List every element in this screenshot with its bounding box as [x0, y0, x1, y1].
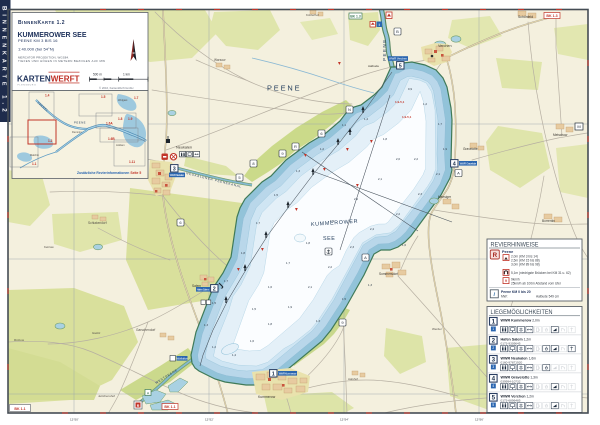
svg-text:039994-10732: 039994-10732 — [501, 380, 521, 384]
svg-text:2,1: 2,1 — [308, 285, 313, 289]
svg-text:Peene: Peene — [502, 250, 513, 254]
svg-text:Werder: Werder — [432, 327, 442, 331]
svg-text:Demmin: Demmin — [72, 130, 82, 134]
svg-text:Zusätzliche Revierinformatione: Zusätzliche Revierinformationen Seite 5 — [77, 171, 141, 175]
svg-text:0173-9309645: 0173-9309645 — [501, 342, 521, 346]
svg-text:1,2: 1,2 — [320, 147, 325, 151]
svg-text:1: 1 — [492, 319, 496, 326]
svg-text:1,2: 1,2 — [212, 345, 217, 349]
svg-text:1,9: 1,9 — [288, 305, 293, 309]
svg-text:1,6: 1,6 — [250, 339, 255, 343]
svg-text:0,9: 0,9 — [408, 87, 413, 91]
svg-text:500 m: 500 m — [93, 73, 102, 77]
svg-text:Gielitz: Gielitz — [92, 331, 101, 335]
svg-text:PEENE: PEENE — [267, 84, 301, 93]
svg-text:BK 1.1: BK 1.1 — [14, 407, 25, 411]
svg-text:2: 2 — [213, 286, 216, 292]
svg-text:5: 5 — [492, 395, 496, 402]
svg-text:N: N — [348, 107, 351, 112]
svg-text:WWR Kummerow 2,0m: WWR Kummerow 2,0m — [501, 319, 540, 323]
svg-text:2: 2 — [492, 346, 494, 350]
svg-text:Schönfeld: Schönfeld — [518, 15, 533, 19]
svg-text:2,1: 2,1 — [436, 172, 441, 176]
svg-text:1: 1 — [272, 371, 275, 377]
svg-text:SEE: SEE — [323, 236, 336, 242]
svg-text:1,5: 1,5 — [252, 307, 257, 311]
svg-text:2,0: 2,0 — [396, 157, 401, 161]
svg-text:MW:: MW: — [501, 295, 508, 299]
svg-text:1,8: 1,8 — [306, 241, 311, 245]
svg-text:1,6: 1,6 — [402, 243, 407, 247]
svg-text:0160-97871920: 0160-97871920 — [501, 361, 523, 365]
svg-text:KARTENWERFT: KARTENWERFT — [17, 74, 80, 84]
svg-text:REVIERHINWEISE: REVIERHINWEISE — [491, 242, 539, 248]
svg-text:1 km: 1 km — [123, 73, 130, 77]
svg-text:1,3: 1,3 — [316, 319, 321, 323]
svg-text:R: R — [294, 144, 297, 149]
svg-text:Warsow: Warsow — [214, 58, 226, 62]
svg-text:Verchen: Verchen — [438, 44, 452, 48]
svg-text:2,0: 2,0 — [354, 197, 359, 201]
svg-text:1.6A: 1.6A — [106, 122, 113, 126]
svg-text:1.2: 1.2 — [48, 139, 53, 143]
svg-text:Schlakendorf: Schlakendorf — [88, 221, 107, 225]
svg-text:3: 3 — [173, 166, 176, 172]
svg-text:5: 5 — [492, 403, 494, 407]
svg-text:N: N — [133, 51, 135, 55]
svg-text:Gravelotte: Gravelotte — [463, 147, 478, 151]
svg-text:1,7: 1,7 — [224, 279, 229, 283]
svg-text:LIEGEMÖGLICHKEITEN: LIEGEMÖGLICHKEITEN — [491, 309, 553, 316]
svg-text:0173-6896485: 0173-6896485 — [501, 399, 521, 403]
svg-text:3,0m (KM 89 bis 98): 3,0m (KM 89 bis 98) — [511, 262, 540, 266]
svg-text:12°50': 12°50' — [70, 418, 79, 422]
svg-text:4: 4 — [453, 161, 456, 167]
svg-text:1.11: 1.11 — [129, 160, 135, 164]
svg-text:Sommersdorf: Sommersdorf — [379, 272, 398, 276]
svg-text:Meesiger: Meesiger — [438, 195, 452, 199]
svg-text:Anklam: Anklam — [116, 143, 125, 147]
svg-text:3: 3 — [492, 357, 496, 364]
svg-text:WWR Kummerow: WWR Kummerow — [279, 372, 297, 376]
svg-text:1,5: 1,5 — [274, 193, 279, 197]
svg-text:© 2016, KartenWerft GmbH: © 2016, KartenWerft GmbH — [99, 86, 133, 90]
svg-text:Aalbude: Aalbude — [368, 64, 379, 68]
svg-text:3: 3 — [492, 365, 494, 369]
svg-text:1,9-5,1: 1,9-5,1 — [395, 100, 405, 104]
svg-text:1.8: 1.8 — [118, 117, 123, 121]
svg-text:2,2: 2,2 — [414, 157, 419, 161]
svg-text:2,2: 2,2 — [396, 212, 401, 216]
svg-text:2,1: 2,1 — [378, 177, 383, 181]
svg-text:A: A — [364, 255, 367, 260]
svg-text:Neukalen: Neukalen — [176, 146, 192, 150]
svg-text:1,5: 1,5 — [342, 297, 347, 301]
svg-text:5: 5 — [399, 63, 402, 69]
svg-text:4: 4 — [492, 384, 494, 388]
svg-text:WWR Gravelotte: WWR Gravelotte — [460, 162, 477, 166]
svg-text:12°52': 12°52' — [205, 418, 214, 422]
svg-text:1.6B: 1.6B — [108, 137, 115, 141]
svg-text:Garschendorf: Garschendorf — [136, 328, 155, 332]
svg-text:1,7: 1,7 — [256, 221, 261, 225]
svg-text:FLENSBURG: FLENSBURG — [18, 85, 37, 87]
svg-text:2: 2 — [492, 338, 496, 345]
svg-text:B: B — [396, 29, 399, 34]
svg-text:BINNENKARTE 1.2: BINNENKARTE 1.2 — [1, 6, 8, 112]
svg-text:9: 9 — [505, 279, 507, 283]
svg-text:1,4: 1,4 — [364, 117, 369, 121]
svg-text:1,2: 1,2 — [423, 102, 428, 106]
svg-text:1,4: 1,4 — [232, 353, 237, 357]
svg-text:Metschow: Metschow — [553, 133, 568, 137]
svg-text:1,1: 1,1 — [342, 123, 347, 127]
svg-text:1,3: 1,3 — [368, 283, 373, 287]
svg-text:i: i — [379, 22, 380, 27]
svg-text:2,3: 2,3 — [418, 192, 423, 196]
svg-text:1.9: 1.9 — [128, 117, 133, 121]
svg-text:1,7: 1,7 — [286, 261, 291, 265]
svg-text:Kelzow: Kelzow — [44, 245, 55, 249]
svg-text:Peene KM 0 bis 20: Peene KM 0 bis 20 — [501, 290, 531, 294]
svg-text:M: M — [577, 124, 580, 129]
svg-text:Aalbude 549 cm: Aalbude 549 cm — [536, 295, 559, 299]
svg-text:1.5: 1.5 — [101, 95, 106, 99]
svg-text:1: 1 — [492, 327, 494, 331]
svg-text:1,5: 1,5 — [212, 301, 217, 305]
svg-text:1,9-5,1: 1,9-5,1 — [402, 115, 412, 119]
svg-text:WWR Neukalen: WWR Neukalen — [170, 173, 185, 177]
svg-text:1,8: 1,8 — [241, 251, 246, 255]
svg-text:25km/h ab 100m Abstand vom Ufe: 25km/h ab 100m Abstand vom Ufer — [511, 282, 562, 286]
svg-text:Kummerow: Kummerow — [258, 395, 276, 399]
svg-text:1,3: 1,3 — [296, 169, 301, 173]
svg-text:R: R — [493, 252, 498, 259]
svg-text:1.7: 1.7 — [134, 96, 139, 100]
svg-text:1.4: 1.4 — [45, 94, 50, 98]
svg-text:Borrentin: Borrentin — [542, 219, 555, 223]
svg-text:Salem: Salem — [192, 284, 201, 288]
svg-text:1:40.000 (bei 54°N): 1:40.000 (bei 54°N) — [18, 47, 55, 52]
svg-text:Rützow: Rützow — [14, 338, 25, 342]
svg-text:Aalshof: Aalshof — [348, 377, 358, 381]
svg-text:PEENE: PEENE — [74, 121, 86, 125]
svg-text:PEENE: PEENE — [382, 38, 387, 61]
svg-text:2,2: 2,2 — [328, 265, 333, 269]
svg-text:BK 1.3: BK 1.3 — [350, 15, 361, 19]
svg-text:2,3: 2,3 — [350, 245, 355, 249]
svg-text:1,9: 1,9 — [443, 147, 448, 151]
svg-text:TIEFEN UND HÖHEN IN METERN BEZ: TIEFEN UND HÖHEN IN METERN BEZOGEN AUF M… — [18, 59, 105, 63]
svg-text:1,8: 1,8 — [383, 137, 388, 141]
svg-text:Mühlbäker: Mühlbäker — [176, 358, 187, 361]
svg-text:12°56': 12°56' — [475, 418, 484, 422]
svg-text:2,4: 2,4 — [370, 227, 375, 231]
svg-text:Hafen Salem: Hafen Salem — [197, 288, 210, 292]
svg-text:12°54': 12°54' — [340, 418, 349, 422]
svg-text:R: R — [137, 404, 140, 408]
svg-text:BK 1.3: BK 1.3 — [546, 14, 557, 18]
svg-text:Kützerhof: Kützerhof — [306, 13, 319, 17]
svg-text:1,6: 1,6 — [268, 285, 273, 289]
svg-text:5,1m (niedrigste Brücken bei K: 5,1m (niedrigste Brücken bei KM 31 u. 62… — [511, 271, 571, 275]
svg-text:1,8: 1,8 — [268, 322, 273, 326]
svg-text:BK 1.1: BK 1.1 — [164, 405, 175, 409]
svg-text:1.1: 1.1 — [32, 162, 37, 166]
svg-text:1,7: 1,7 — [438, 122, 443, 126]
svg-text:Jettchenshof: Jettchenshof — [98, 394, 115, 398]
svg-text:A: A — [147, 391, 150, 395]
svg-text:PEENE KM 3 BIS 16: PEENE KM 3 BIS 16 — [18, 38, 58, 43]
svg-text:A: A — [457, 171, 460, 176]
svg-text:1,3: 1,3 — [204, 323, 209, 327]
svg-text:WWR Verchen: WWR Verchen — [389, 57, 407, 61]
svg-text:4: 4 — [492, 376, 496, 383]
svg-text:Wolgast: Wolgast — [118, 98, 128, 102]
svg-text:Malchin: Malchin — [30, 153, 39, 157]
